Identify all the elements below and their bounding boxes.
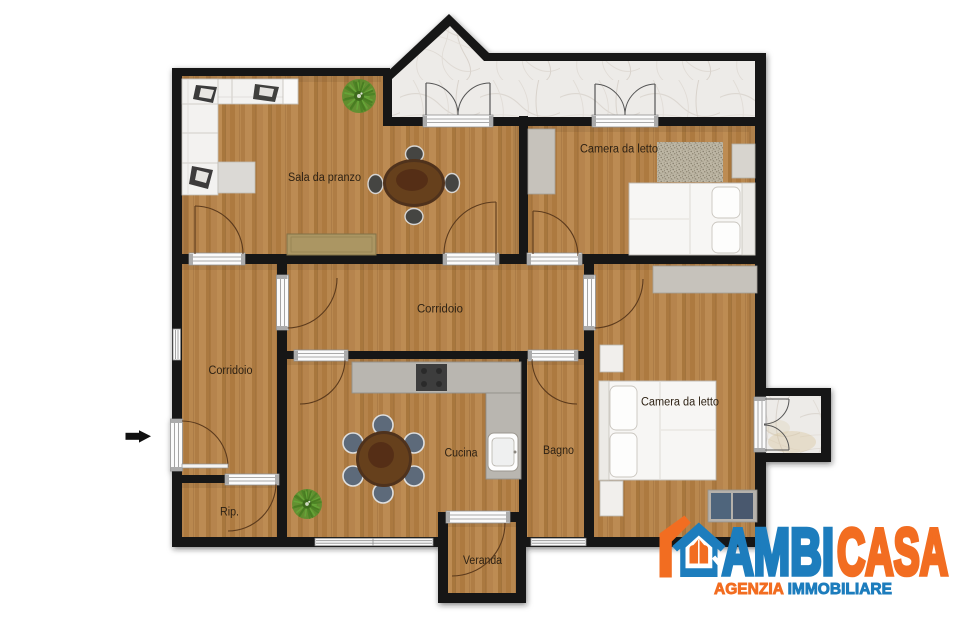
svg-text:AMBI: AMBI bbox=[722, 515, 834, 589]
svg-text:Bagno: Bagno bbox=[543, 445, 574, 457]
svg-text:Sala da pranzo: Sala da pranzo bbox=[288, 172, 361, 184]
svg-text:AGENZIA IMMOBILIARE: AGENZIA IMMOBILIARE bbox=[714, 581, 892, 598]
svg-text:Corridoio: Corridoio bbox=[417, 304, 463, 316]
svg-text:Camera da letto: Camera da letto bbox=[641, 397, 719, 409]
svg-text:Camera da letto: Camera da letto bbox=[580, 144, 658, 156]
svg-text:CASA: CASA bbox=[837, 515, 948, 589]
svg-text:Corridoio: Corridoio bbox=[209, 365, 253, 377]
svg-text:Rip.: Rip. bbox=[220, 507, 239, 519]
svg-text:Veranda: Veranda bbox=[463, 555, 503, 567]
svg-text:Cucina: Cucina bbox=[445, 448, 479, 460]
